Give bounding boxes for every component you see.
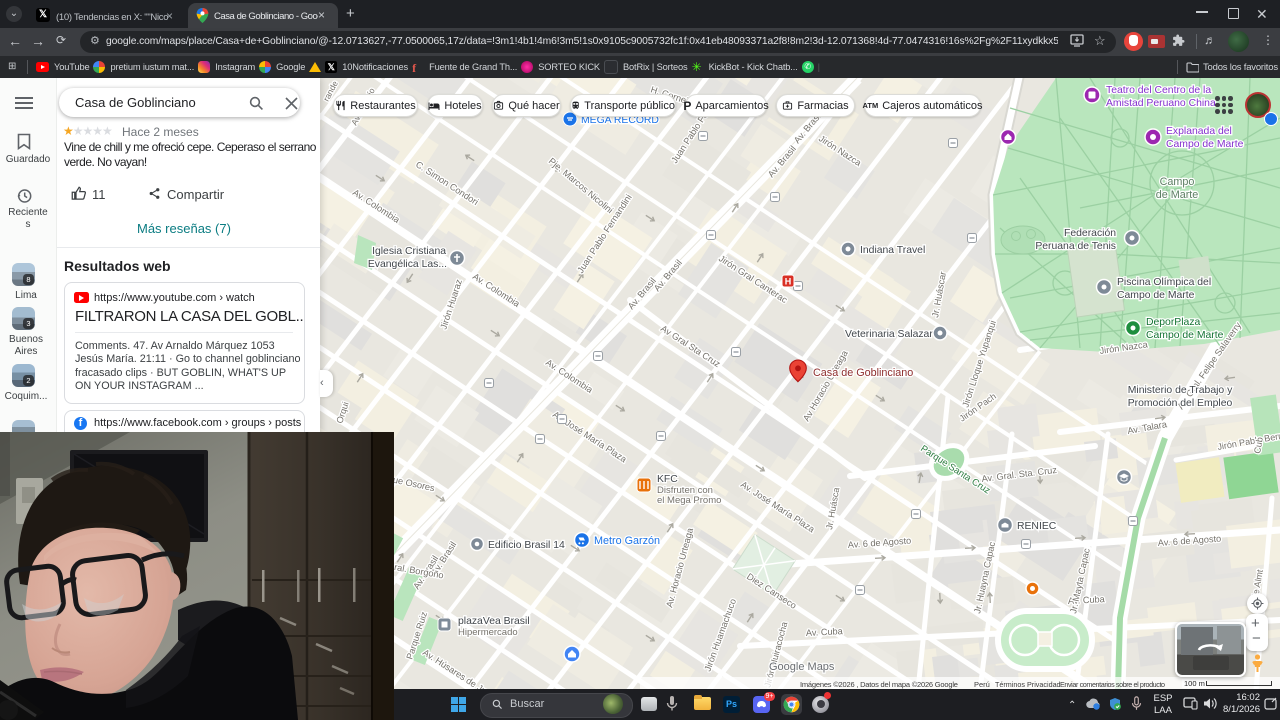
svg-text:plazaVea Brasil: plazaVea Brasil	[458, 616, 530, 627]
svg-text:Av. Cuba: Av. Cuba	[806, 626, 844, 638]
svg-text:Casa de Goblinciano: Casa de Goblinciano	[813, 367, 913, 379]
svg-text:DeporPlaza: DeporPlaza	[1146, 317, 1201, 328]
svg-text:Peruana de Tenis: Peruana de Tenis	[1035, 241, 1116, 252]
svg-text:el Mega Promo: el Mega Promo	[657, 495, 721, 506]
svg-text:Campo de Marte: Campo de Marte	[1117, 290, 1195, 301]
svg-text:Teatro del Centro de la: Teatro del Centro de la	[1106, 85, 1211, 96]
svg-text:Hipermercado: Hipermercado	[458, 627, 518, 638]
svg-text:Veterinaria Salazar: Veterinaria Salazar	[845, 329, 933, 340]
svg-text:Metro Garzón: Metro Garzón	[594, 535, 660, 547]
svg-text:de Marte: de Marte	[1156, 189, 1199, 201]
svg-text:Evangélica Las...: Evangélica Las...	[368, 259, 447, 270]
svg-text:Piscina Olímpica del: Piscina Olímpica del	[1117, 277, 1211, 288]
svg-text:Promoción del Empleo: Promoción del Empleo	[1128, 398, 1233, 409]
svg-text:Explanada del: Explanada del	[1166, 126, 1232, 137]
svg-text:Indiana Travel: Indiana Travel	[860, 245, 925, 256]
svg-text:KFC: KFC	[657, 474, 678, 485]
svg-text:Edificio Brasil 14: Edificio Brasil 14	[488, 540, 565, 551]
svg-text:Federación: Federación	[1064, 228, 1116, 239]
svg-text:Google Maps: Google Maps	[769, 661, 835, 673]
svg-text:Campo: Campo	[1160, 176, 1195, 188]
svg-text:Amistad Peruano China: Amistad Peruano China	[1106, 98, 1216, 109]
svg-text:H: H	[785, 277, 792, 287]
svg-text:RENIEC: RENIEC	[1017, 521, 1057, 532]
svg-text:Campo de Marte: Campo de Marte	[1146, 330, 1224, 341]
svg-text:Ministerio de Trabajo y: Ministerio de Trabajo y	[1128, 385, 1233, 396]
svg-text:Campo de Marte: Campo de Marte	[1166, 139, 1244, 150]
svg-text:Iglesia Cristiana: Iglesia Cristiana	[372, 246, 446, 257]
